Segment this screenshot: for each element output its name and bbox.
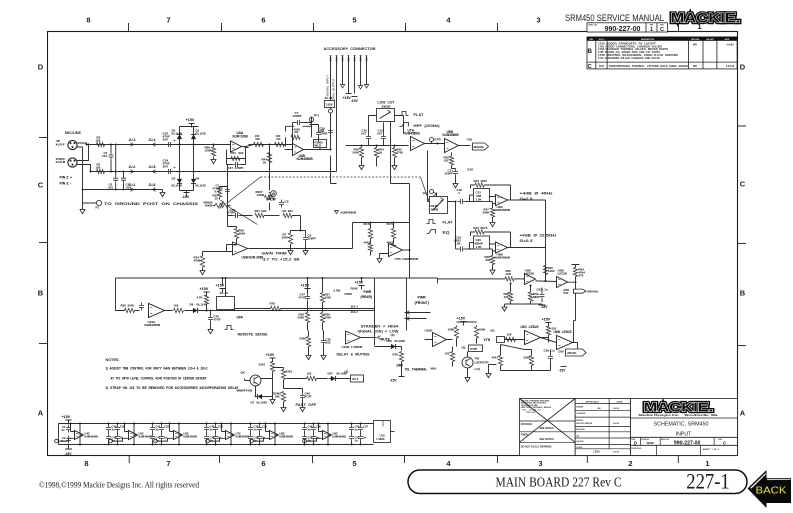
svg-text:6: 6	[261, 459, 265, 468]
svg-text:920: 920	[239, 151, 244, 155]
svg-text:.XXX 0.010: .XXX 0.010	[521, 412, 535, 414]
svg-text:G=2.0: G=2.0	[520, 197, 533, 201]
svg-text:(REAR): (REAR)	[361, 295, 373, 299]
svg-text:5000: 5000	[353, 151, 360, 155]
svg-text:MIC/LINE: MIC/LINE	[65, 131, 82, 135]
svg-text:5: 5	[352, 16, 356, 25]
svg-text:SRM450 SERVICE MANUAL: SRM450 SERVICE MANUAL	[565, 13, 664, 23]
svg-text:+15V: +15V	[542, 318, 551, 322]
svg-text:J10-3: J10-3	[341, 54, 345, 61]
svg-text:2n: 2n	[363, 436, 366, 440]
svg-text:580: 580	[486, 258, 491, 262]
svg-text:JU-3: JU-3	[129, 138, 136, 142]
svg-text:HPF (100Hz): HPF (100Hz)	[414, 124, 440, 128]
svg-text:DGN FILE:: DGN FILE:	[631, 448, 642, 450]
svg-text:C: C	[588, 64, 592, 70]
svg-text:MR: MR	[693, 44, 697, 47]
svg-text:103: 103	[326, 341, 331, 345]
svg-text:J10-2: J10-2	[351, 310, 359, 314]
svg-text:10K: 10K	[275, 395, 280, 399]
svg-text:(S): (S)	[491, 329, 495, 333]
svg-text:47UF: 47UF	[214, 318, 221, 322]
svg-text:BL1048: BL1048	[257, 401, 268, 405]
svg-text:DESCRIPTION: DESCRIPTION	[641, 39, 655, 41]
svg-text:VCC: VCC	[381, 421, 385, 427]
svg-text:NJM4580B: NJM4580B	[495, 256, 511, 260]
svg-text:XLR-F: XLR-F	[56, 142, 65, 146]
svg-text:PS/B: PS/B	[345, 292, 353, 296]
svg-text:1-8-99: 1-8-99	[613, 451, 620, 453]
svg-text:1-8-99: 1-8-99	[613, 423, 620, 425]
svg-text:D57: D57	[328, 372, 334, 376]
svg-text:70L THERMAL: 70L THERMAL	[405, 368, 428, 372]
svg-text:R52: R52	[121, 304, 127, 308]
svg-text:NJM4560B: NJM4560B	[280, 435, 294, 439]
svg-text:2n: 2n	[164, 436, 167, 440]
svg-text:NJM4580B: NJM4580B	[297, 157, 314, 161]
svg-text:APPROVALS: APPROVALS	[585, 401, 599, 404]
svg-text:1-8-99: 1-8-99	[613, 408, 620, 410]
svg-text:4700: 4700	[397, 151, 404, 155]
svg-text:7: 7	[166, 16, 170, 25]
svg-text:JU-1: JU-1	[129, 183, 136, 187]
svg-text:R51 920: R51 920	[255, 209, 267, 213]
svg-text:4041: 4041	[492, 356, 499, 360]
svg-text:NJM4560B: NJM4560B	[333, 435, 347, 439]
svg-text:DELAY & MUTING: DELAY & MUTING	[337, 353, 370, 357]
svg-text:B: B	[740, 289, 746, 298]
svg-text:SHEET 1 OF 6: SHEET 1 OF 6	[703, 449, 720, 451]
svg-text:2n: 2n	[210, 428, 213, 432]
svg-text:U10D: U10D	[425, 329, 434, 333]
svg-text:PWR: PWR	[418, 296, 427, 300]
svg-text:8: 8	[84, 459, 88, 468]
svg-text:C55: C55	[262, 425, 267, 429]
svg-text:-15V: -15V	[390, 379, 398, 383]
svg-text:DATE: DATE	[617, 401, 623, 404]
svg-text:+15V: +15V	[186, 118, 195, 122]
svg-text:CHK. APP.: CHK. APP.	[706, 38, 715, 41]
svg-text:47UF: 47UF	[299, 296, 306, 300]
svg-text:+PEAK: +PEAK	[567, 351, 578, 355]
svg-text:2040: 2040	[128, 304, 135, 308]
svg-text:NJM4580B: NJM4580B	[443, 133, 460, 137]
svg-text:A: A	[38, 409, 44, 418]
svg-text:BL1148: BL1148	[172, 184, 183, 188]
svg-text:J10-4: J10-4	[351, 305, 359, 309]
svg-text:NJM4560B: NJM4560B	[236, 435, 250, 439]
svg-text:XLR-M: XLR-M	[56, 160, 66, 164]
svg-text:22P: 22P	[319, 130, 324, 134]
svg-text:R79: R79	[270, 302, 276, 306]
svg-text:DATE: DATE	[725, 38, 731, 41]
svg-text:NOTES:: NOTES:	[106, 358, 120, 362]
svg-text:1206: 1206	[326, 103, 333, 107]
svg-text:WME: WME	[647, 441, 654, 445]
svg-text:ETR: ETR	[435, 138, 442, 142]
svg-text:SEE NOTES: SEE NOTES	[539, 438, 554, 441]
svg-text:D10: D10	[387, 339, 393, 343]
svg-text:2-9-99: 2-9-99	[727, 44, 735, 47]
svg-text:R43 4042: R43 4042	[474, 179, 488, 183]
svg-text:P1: P1	[96, 206, 100, 210]
svg-text:(S): (S)	[345, 370, 349, 374]
svg-text:2n: 2n	[254, 439, 257, 443]
svg-text:47UF: 47UF	[305, 395, 312, 399]
svg-text:+15V: +15V	[457, 317, 466, 321]
svg-text:C54: C54	[218, 425, 223, 429]
svg-text:R76: R76	[393, 353, 399, 357]
svg-text:+: +	[174, 166, 176, 170]
svg-text:2n: 2n	[254, 428, 257, 432]
svg-text:OFF: OFF	[237, 316, 244, 320]
svg-text:TO GROUND POST ON CHASSIS: TO GROUND POST ON CHASSIS	[104, 202, 199, 206]
svg-text:D4: D4	[196, 177, 200, 181]
svg-text:C38: C38	[544, 349, 550, 353]
svg-text:INPUT: INPUT	[676, 431, 692, 437]
svg-text:PWR: PWR	[364, 290, 372, 294]
svg-text:2n: 2n	[120, 436, 123, 440]
svg-text:+15V: +15V	[355, 281, 364, 285]
svg-text:TP1: TP1	[314, 114, 320, 118]
svg-text:DRV: DRV	[397, 364, 405, 368]
svg-text:MR: MR	[693, 65, 697, 68]
svg-text:2n: 2n	[218, 436, 221, 440]
svg-text:GAIN TRIM: GAIN TRIM	[262, 252, 287, 256]
svg-text:25V: 25V	[163, 138, 169, 142]
svg-text:ECO #: ECO #	[599, 39, 604, 41]
svg-text:PERFORMANCE THERMAL, FIXTURE: PERFORMANCE THERMAL, FIXTURE HOLE SIZES …	[609, 65, 688, 68]
svg-text:RES. ENG.: RES. ENG.	[691, 39, 700, 41]
svg-text:2-24-99: 2-24-99	[726, 65, 735, 68]
svg-text:-C9: -C9	[284, 200, 289, 204]
svg-text:1.5K: 1.5K	[455, 242, 462, 246]
svg-text:SCHEMATIC, SRM450: SCHEMATIC, SRM450	[654, 421, 709, 427]
svg-text:3: 3	[536, 16, 540, 25]
svg-text:.001: .001	[108, 186, 114, 190]
svg-text:1000: 1000	[548, 269, 555, 273]
svg-text:VTN: VTN	[484, 338, 491, 342]
svg-text:.1: .1	[458, 191, 461, 195]
svg-text:(S): (S)	[462, 346, 466, 350]
svg-text:25V: 25V	[163, 165, 169, 169]
svg-text:C56: C56	[316, 425, 321, 429]
svg-text:R246: R246	[351, 287, 358, 291]
svg-text:5000: 5000	[300, 337, 307, 341]
svg-text:EQ: EQ	[443, 231, 451, 235]
svg-text:+4dB Ø 22.5kHz: +4dB Ø 22.5kHz	[520, 234, 557, 238]
svg-text:100: 100	[255, 134, 260, 138]
svg-text:.1u: .1u	[544, 288, 548, 292]
svg-text:1000: 1000	[325, 296, 332, 300]
svg-text:ACT: ACT	[352, 377, 358, 381]
svg-text:2n: 2n	[316, 436, 319, 440]
svg-text:2n: 2n	[112, 428, 115, 432]
svg-text:2040: 2040	[524, 356, 531, 360]
svg-text:+15V: +15V	[62, 415, 71, 419]
svg-text:SW1B: SW1B	[382, 105, 392, 109]
svg-text:.1u: .1u	[551, 349, 555, 353]
svg-text:D: D	[38, 63, 44, 72]
svg-text:103: 103	[444, 159, 449, 163]
svg-text:J10-1: J10-1	[329, 54, 333, 61]
svg-text:FLAT: FLAT	[443, 221, 454, 225]
svg-text:SEE NOTES: SEE NOTES	[539, 427, 554, 430]
svg-text:227-1: 227-1	[686, 468, 730, 493]
svg-text:3303: 3303	[259, 363, 266, 367]
svg-text:D3: D3	[172, 177, 176, 181]
svg-text:DRAWN: DRAWN	[576, 406, 583, 409]
svg-text:6: 6	[261, 16, 265, 25]
svg-text:C: C	[660, 27, 664, 33]
svg-text:103: 103	[307, 372, 312, 376]
svg-text:990-227-00: 990-227-00	[674, 440, 701, 446]
svg-text:BK: BK	[598, 408, 602, 410]
svg-text:C53: C53	[164, 425, 169, 429]
svg-text:102: 102	[504, 295, 509, 299]
svg-text:2n: 2n	[112, 439, 115, 443]
svg-text:U7B NJM4580B: U7B NJM4580B	[395, 257, 419, 261]
svg-text:CN1: CN1	[467, 138, 473, 142]
svg-text:4049: 4049	[194, 259, 201, 263]
svg-text:4303: 4303	[286, 370, 293, 374]
svg-text:J10-4: J10-4	[347, 54, 351, 61]
svg-text:LED20: LED20	[525, 272, 535, 276]
svg-text:2: 2	[628, 459, 632, 468]
svg-text:C: C	[740, 180, 746, 189]
svg-text:AT TP2 WITH LEVEL CONTROL: AT TP2 WITH LEVEL CONTROL R245 POSITION …	[111, 377, 208, 381]
svg-text:R46 6K76: R46 6K76	[474, 226, 488, 230]
svg-text:DO NOT SCALE DRAWING: DO NOT SCALE DRAWING	[521, 445, 552, 448]
svg-text:BL1148: BL1148	[196, 184, 207, 188]
svg-text:2n: 2n	[156, 428, 159, 432]
svg-text:SIGNAL: SIGNAL	[587, 290, 599, 294]
svg-text:NJM4560B: NJM4560B	[184, 435, 198, 439]
svg-text:2n: 2n	[210, 439, 213, 443]
svg-text:+15V: +15V	[301, 284, 310, 288]
svg-text:NJM4560B: NJM4560B	[85, 435, 99, 439]
svg-text:B: B	[38, 289, 44, 298]
svg-text:C61: C61	[537, 288, 543, 292]
svg-text:220PF: 220PF	[445, 172, 454, 176]
svg-text:NJM4580B: NJM4580B	[495, 208, 511, 212]
svg-text:100: 100	[276, 134, 281, 138]
svg-text:REMOTE SENSE: REMOTE SENSE	[238, 333, 269, 337]
svg-text:QA SGN: QA SGN	[576, 440, 584, 443]
svg-text:(FRONT): (FRONT)	[415, 301, 429, 305]
svg-text:MFG ENG: MFG ENG	[576, 429, 585, 431]
svg-text:JU-2: JU-2	[129, 165, 136, 169]
svg-text:BL1148: BL1148	[196, 132, 207, 136]
svg-text:U3B: U3B	[242, 256, 249, 260]
svg-text:MAIN BOARD 227 Rev C: MAIN BOARD 227 Rev C	[496, 476, 622, 491]
svg-text:10R: 10R	[506, 272, 512, 276]
svg-text:©1998,©1999 Mackie Designs Inc: ©1998,©1999 Mackie Designs Inc. All righ…	[39, 480, 200, 490]
svg-text:+15V: +15V	[266, 353, 275, 357]
svg-text:C52: C52	[120, 425, 125, 429]
svg-text:Q4: Q4	[241, 371, 245, 375]
svg-text:1740 GROUNDED / FILLED CHANG: 1740 GROUNDED / FILLED CHANGES AND HOLES	[598, 57, 660, 60]
svg-text:MACKIE.: MACKIE.	[644, 400, 714, 414]
svg-text:4049: 4049	[294, 128, 301, 132]
svg-text:270: 270	[579, 274, 584, 278]
svg-text:(+5): (+5)	[475, 367, 480, 371]
svg-text:-15V: -15V	[559, 369, 567, 373]
svg-text:(S): (S)	[391, 333, 395, 337]
svg-text:LED20: LED20	[558, 272, 568, 276]
svg-text:+15V: +15V	[216, 284, 225, 288]
svg-text:JU-12: JU-12	[325, 96, 333, 100]
svg-text:JU-6: JU-6	[149, 183, 156, 187]
svg-text:-15V: -15V	[541, 305, 549, 309]
svg-text:LEDPSTR: LEDPSTR	[475, 361, 490, 365]
svg-text:5000: 5000	[298, 316, 305, 320]
svg-text:SCALE: SCALE	[576, 446, 583, 449]
svg-text:C: C	[38, 181, 44, 190]
svg-text:J10-6: J10-6	[359, 54, 363, 61]
svg-text:LEGH: LEGH	[594, 451, 601, 453]
svg-text:+4dB Ø 40Hz: +4dB Ø 40Hz	[520, 192, 553, 196]
svg-text:RE ENG: RE ENG	[576, 420, 583, 422]
svg-text:6800: 6800	[533, 295, 540, 299]
svg-text:D7: D7	[251, 401, 255, 405]
svg-text:DWG NO.: DWG NO.	[589, 25, 599, 27]
svg-text:JU-10: JU-10	[220, 291, 229, 295]
svg-text:5: 5	[352, 459, 356, 468]
svg-text:NJM4580B: NJM4580B	[145, 323, 161, 327]
svg-text:.047: .047	[361, 132, 367, 136]
svg-text:7: 7	[166, 459, 170, 468]
svg-text:J10-7: J10-7	[365, 54, 369, 61]
svg-text:-15V: -15V	[351, 99, 359, 103]
svg-text:1.5K: 1.5K	[476, 245, 483, 249]
svg-text:2n: 2n	[62, 428, 65, 432]
svg-text:MACKIE.: MACKIE.	[671, 10, 741, 26]
svg-text:100R: 100R	[205, 149, 213, 153]
svg-text:SIGNAL: SIGNAL	[474, 145, 485, 149]
svg-text:100K: 100K	[448, 328, 456, 332]
svg-text:DL1048: DL1048	[395, 339, 406, 343]
svg-text:2) STRAP ON J15 TO BE RE: 2) STRAP ON J15 TO BE REMOVED FOR ACCESS…	[106, 386, 239, 390]
svg-text:D8: D8	[190, 303, 194, 307]
svg-text:L1833: L1833	[377, 437, 385, 441]
svg-text:2n: 2n	[355, 428, 358, 432]
svg-text:2n: 2n	[355, 439, 358, 443]
svg-text:2040: 2040	[282, 236, 289, 240]
svg-text:BL1148: BL1148	[172, 132, 183, 136]
svg-text:J10-5: J10-5	[353, 54, 357, 61]
svg-text:C27 470PF: C27 470PF	[228, 166, 244, 170]
svg-text:1.5K: 1.5K	[476, 198, 483, 202]
svg-text:JU-8: JU-8	[149, 165, 156, 169]
svg-text:10KB: 10KB	[205, 204, 214, 208]
svg-text:.047: .047	[377, 132, 383, 136]
svg-text:1: 1	[705, 459, 709, 468]
svg-text:050: 050	[564, 291, 569, 295]
svg-text:470PF: 470PF	[228, 211, 237, 215]
svg-text:Ø: Ø	[272, 192, 275, 196]
svg-text:100: 100	[96, 139, 101, 143]
svg-text:2222: 2222	[599, 66, 605, 68]
svg-text:MAL: MAL	[431, 367, 438, 371]
svg-text:NJM 2068: NJM 2068	[233, 135, 248, 139]
svg-text:0.5W: 0.5W	[334, 289, 341, 293]
svg-text:-15V: -15V	[65, 452, 73, 456]
svg-text:100K: 100K	[479, 328, 487, 332]
svg-text:U6B LED20: U6B LED20	[554, 330, 572, 334]
svg-text:BACK: BACK	[756, 486, 787, 497]
svg-text:+CW: +CW	[269, 198, 276, 202]
svg-text:220PF: 220PF	[308, 237, 317, 241]
svg-text:CTW: CTW	[470, 347, 477, 351]
svg-text:103: 103	[174, 304, 179, 308]
svg-text:200K: 200K	[483, 211, 491, 215]
svg-text:+: +	[174, 139, 176, 143]
svg-text:C57: C57	[363, 425, 368, 429]
svg-text:.001: .001	[102, 154, 108, 158]
svg-text:100: 100	[96, 166, 101, 170]
svg-text:10: 10	[215, 197, 219, 201]
svg-text:2n: 2n	[308, 439, 311, 443]
svg-text:CHECKED: CHECKED	[576, 413, 586, 415]
svg-text:1) ADJUST TRB CONTROL FOR: 1) ADJUST TRB CONTROL FOR UNITY GAIN BET…	[106, 367, 208, 371]
svg-text:1: 1	[650, 27, 653, 33]
svg-text:2n: 2n	[262, 436, 265, 440]
svg-text:B: B	[587, 48, 592, 55]
svg-text:NJM4580B: NJM4580B	[341, 211, 357, 215]
svg-text:-3.7 TO +15.2 dB: -3.7 TO +15.2 dB	[262, 258, 301, 262]
svg-text:FLAT: FLAT	[414, 113, 425, 117]
svg-text:U6C LED20: U6C LED20	[521, 325, 539, 329]
svg-text:D: D	[740, 63, 746, 72]
svg-text:10KB: 10KB	[431, 208, 440, 212]
svg-text:MMBT4403: MMBT4403	[237, 389, 253, 393]
svg-text:E16: E16	[468, 168, 474, 172]
svg-text:Mackie Designs Inc. Woodinv: Mackie Designs Inc. Woodinville, Wa.	[639, 413, 719, 417]
svg-text:-15V: -15V	[182, 195, 190, 199]
svg-text:4.7K: 4.7K	[197, 296, 204, 300]
svg-text:R51: R51	[231, 151, 237, 155]
svg-text:NJM4580B: NJM4580B	[404, 132, 421, 136]
svg-text:STANDBY = HIGH: STANDBY = HIGH	[361, 325, 400, 329]
svg-text:+15V: +15V	[200, 287, 209, 291]
svg-text:2n: 2n	[308, 428, 311, 432]
svg-text:A: A	[740, 409, 746, 418]
svg-text:ME FOR E PERSON: ME FOR E PERSON	[576, 423, 593, 425]
svg-text:MATERIAL: MATERIAL	[521, 423, 533, 426]
svg-text:G=0.3: G=0.3	[520, 239, 533, 243]
svg-text:220PF: 220PF	[293, 114, 302, 118]
svg-text:FAST OFF: FAST OFF	[296, 403, 318, 407]
svg-text:PIN 2: +: PIN 2: +	[60, 176, 73, 180]
svg-text:5000: 5000	[325, 316, 332, 320]
svg-text:10KB: 10KB	[257, 193, 266, 197]
svg-text:3: 3	[538, 459, 542, 468]
svg-text:JU-4: JU-4	[149, 138, 156, 142]
svg-text:DWG. NO.: DWG. NO.	[661, 439, 670, 441]
svg-text:ACCESSORY CONNECTOR: ACCESSORY CONNECTOR	[324, 47, 377, 51]
svg-text:R3 920: R3 920	[283, 209, 294, 213]
svg-text:J10-2: J10-2	[335, 54, 339, 61]
svg-text:PIN 3: -: PIN 3: -	[60, 182, 72, 186]
svg-text:U10B L4580B: U10B L4580B	[342, 345, 363, 349]
svg-text:BL1148: BL1148	[197, 303, 208, 307]
svg-text:8: 8	[86, 16, 90, 25]
svg-text:103: 103	[445, 352, 450, 356]
svg-text:4049: 4049	[239, 232, 246, 236]
svg-text:106: 106	[507, 333, 512, 337]
svg-text:D36: D36	[559, 350, 565, 354]
